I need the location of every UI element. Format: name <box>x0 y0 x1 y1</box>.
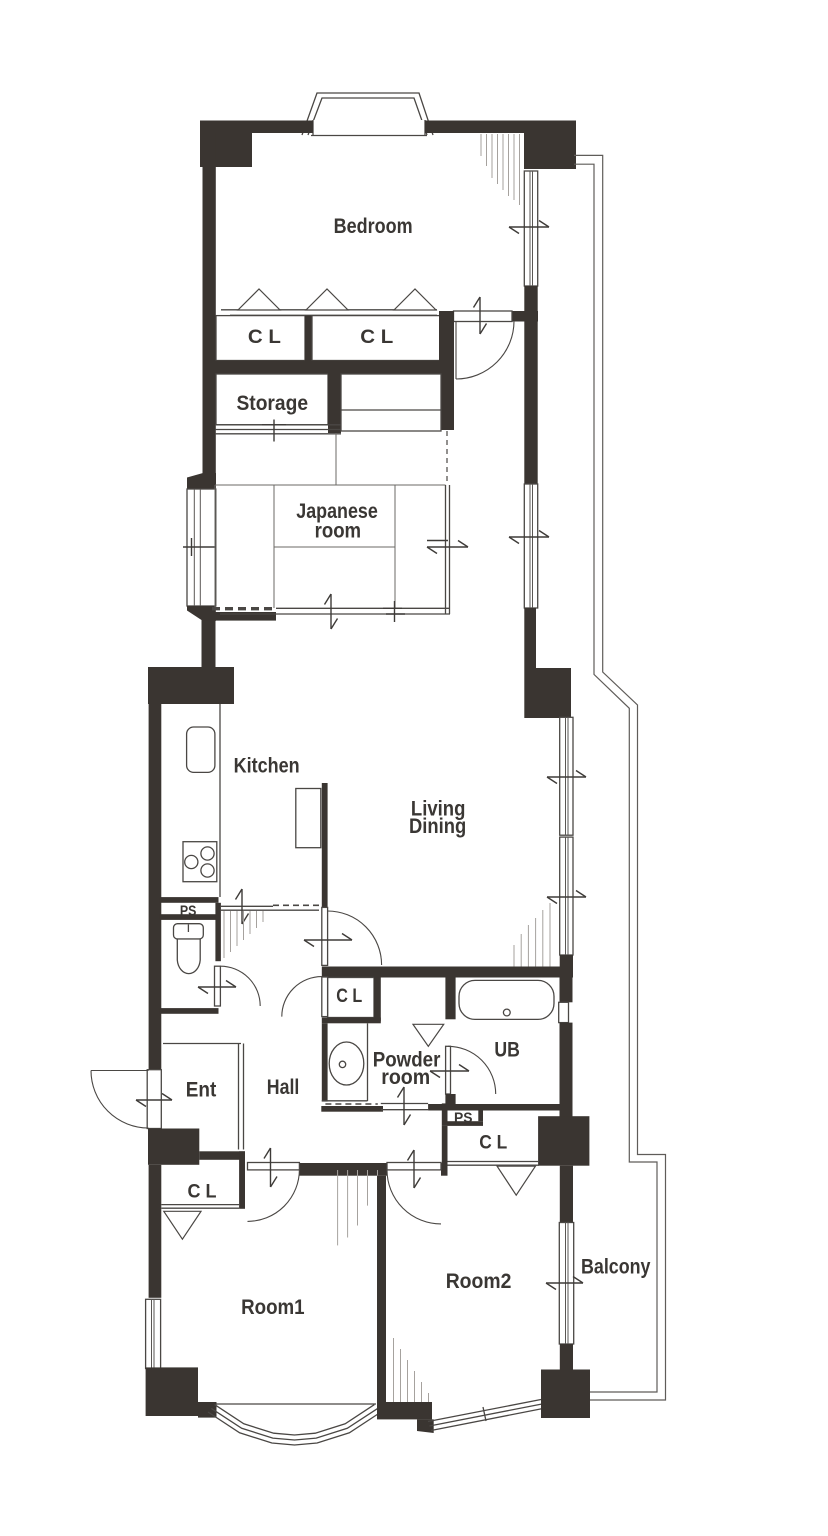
svg-text:Balcony: Balcony <box>581 1256 651 1279</box>
svg-text:C L: C L <box>188 1182 217 1203</box>
svg-text:C L: C L <box>248 327 281 348</box>
svg-text:Kitchen: Kitchen <box>234 755 300 778</box>
svg-text:Ent: Ent <box>186 1079 217 1102</box>
svg-text:PS: PS <box>180 903 197 920</box>
svg-text:C L: C L <box>336 986 362 1007</box>
svg-text:Storage: Storage <box>237 392 309 415</box>
svg-text:C L: C L <box>360 327 393 348</box>
svg-text:PS: PS <box>454 1110 473 1127</box>
svg-text:room: room <box>315 520 362 543</box>
svg-text:Room1: Room1 <box>241 1296 305 1319</box>
svg-text:Room2: Room2 <box>446 1270 512 1293</box>
svg-text:Bedroom: Bedroom <box>334 215 413 238</box>
svg-text:C L: C L <box>479 1132 507 1153</box>
svg-text:Dining: Dining <box>409 815 466 838</box>
svg-text:UB: UB <box>494 1039 520 1062</box>
svg-text:room: room <box>381 1066 430 1089</box>
svg-text:Hall: Hall <box>267 1076 300 1099</box>
